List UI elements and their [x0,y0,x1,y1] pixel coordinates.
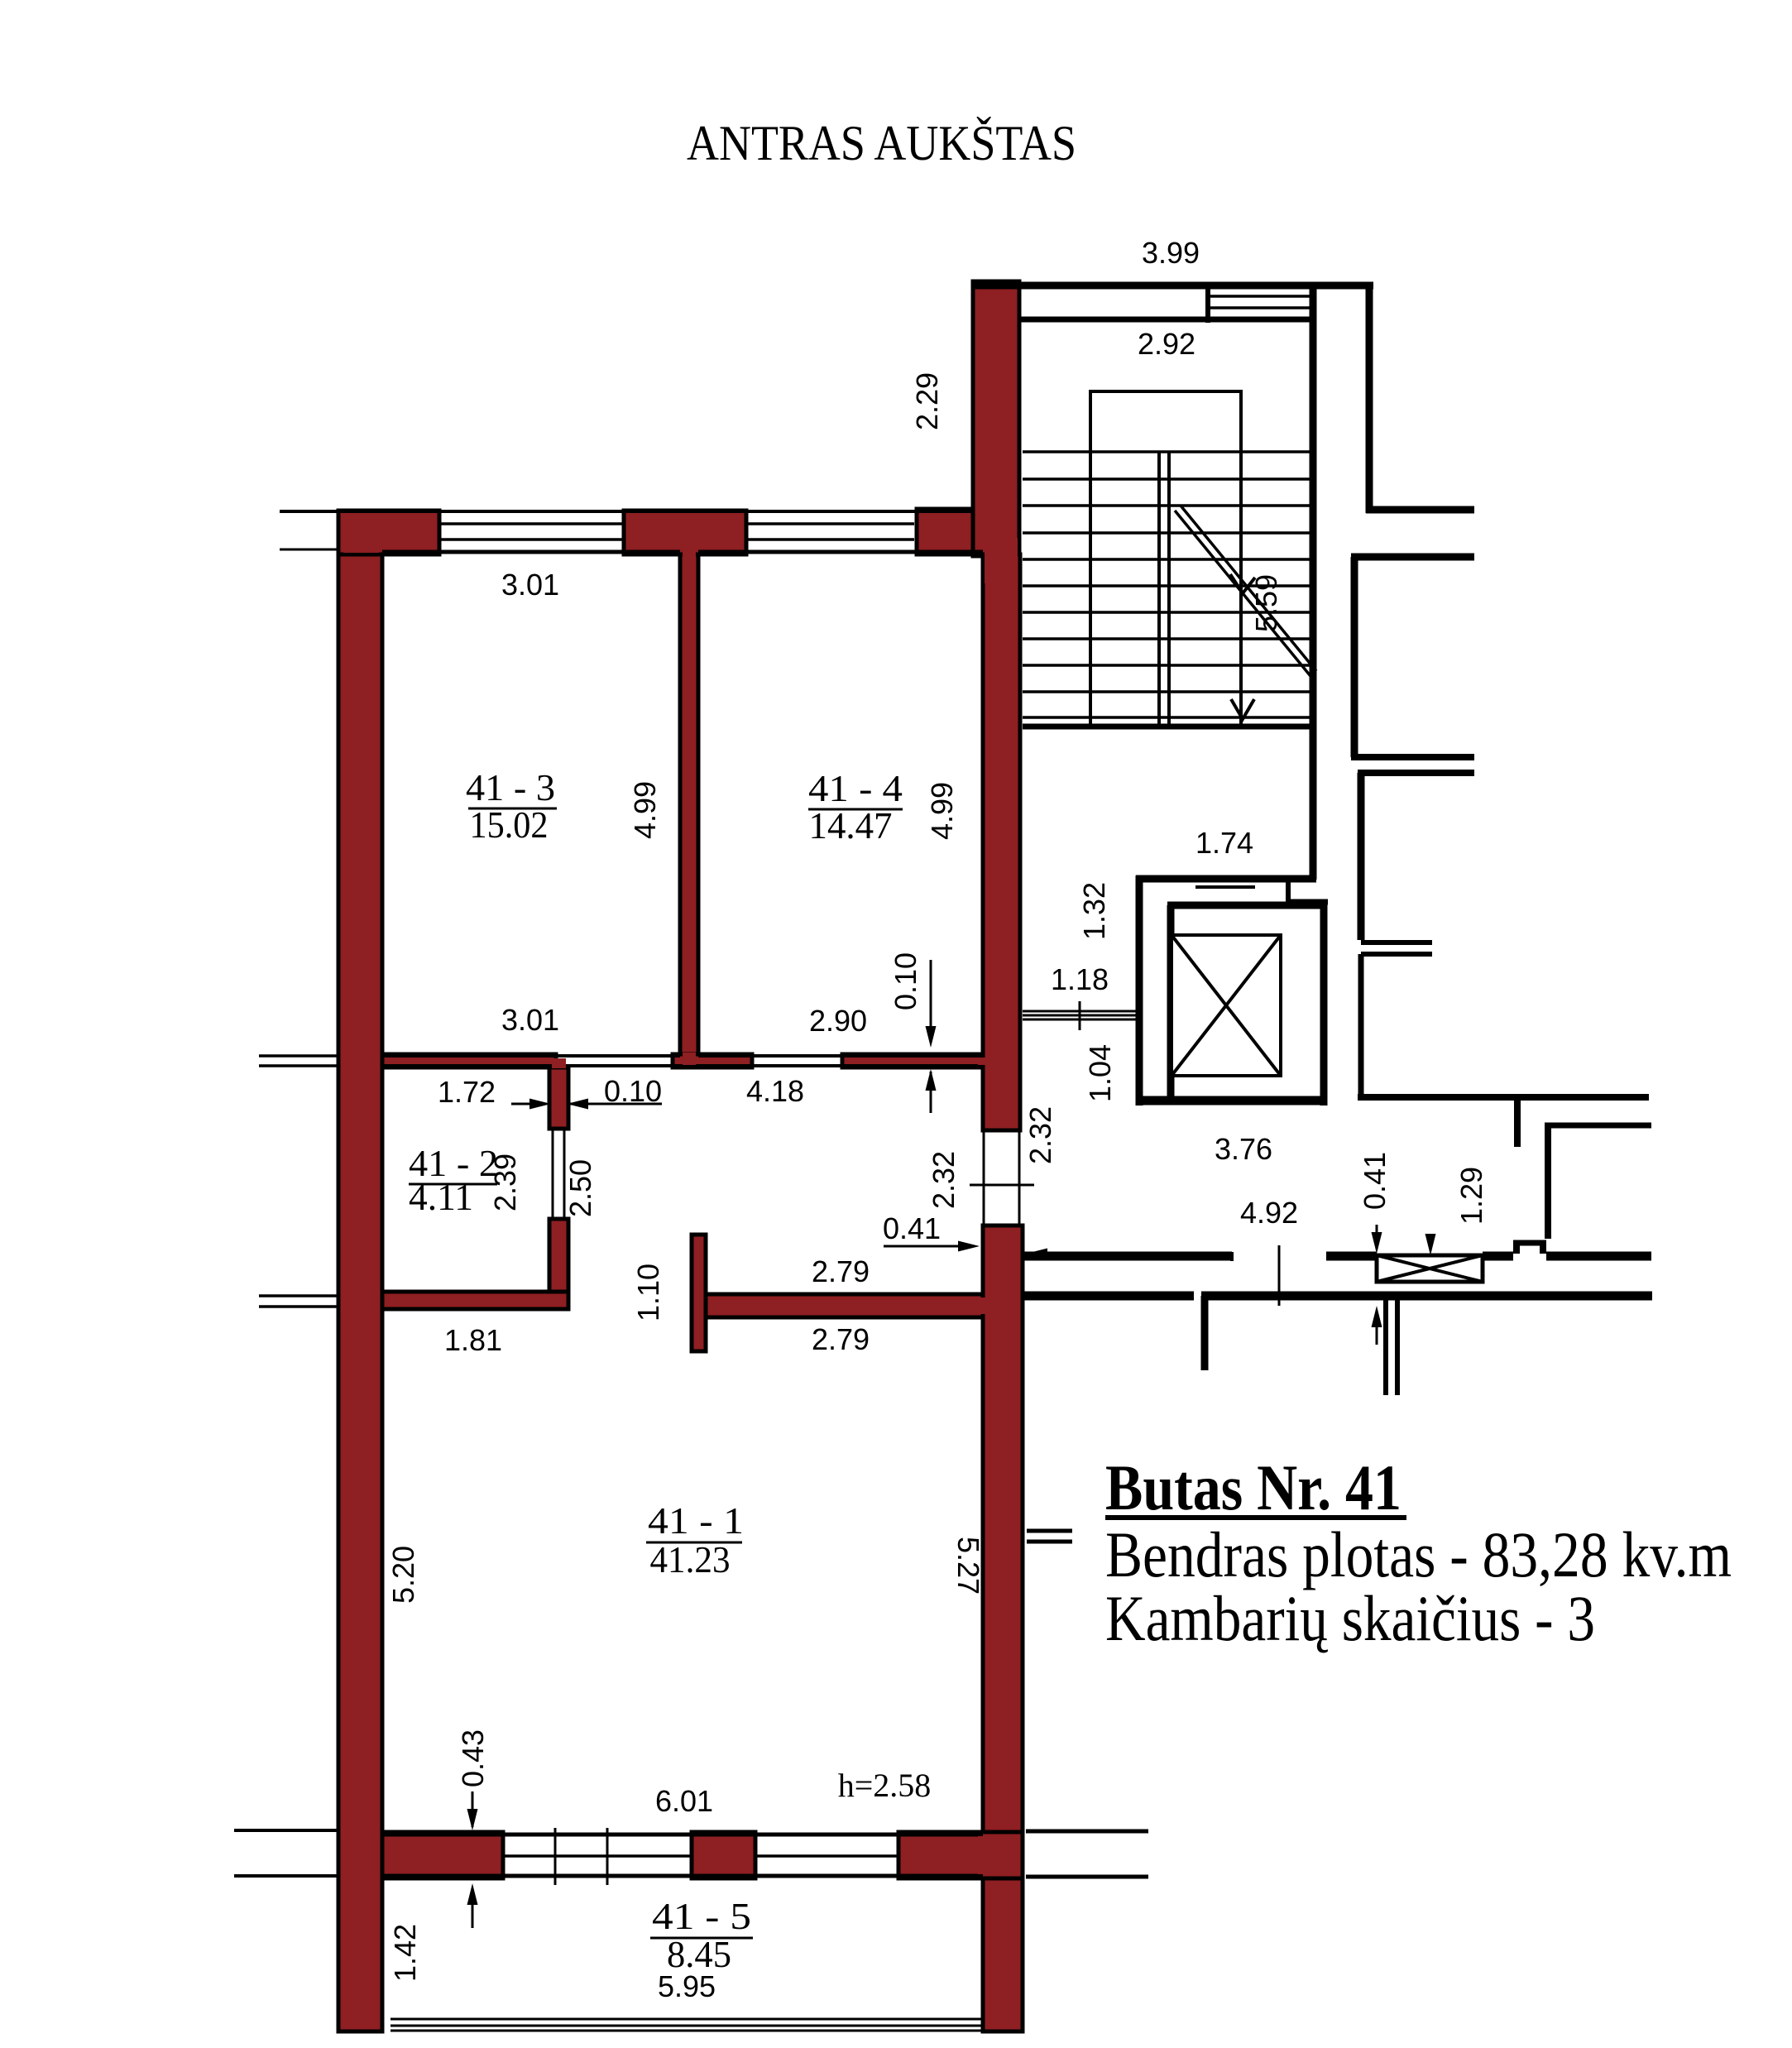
svg-text:1.72: 1.72 [438,1075,496,1109]
svg-text:14.47: 14.47 [809,804,893,847]
svg-text:3.76: 3.76 [1215,1132,1272,1166]
svg-text:1.81: 1.81 [444,1323,502,1357]
svg-text:Kambarių skaičius - 3: Kambarių skaičius - 3 [1105,1582,1595,1654]
svg-text:1.10: 1.10 [631,1264,665,1321]
svg-text:3.01: 3.01 [501,568,559,602]
svg-text:0.43: 0.43 [456,1729,490,1787]
svg-text:2.32: 2.32 [927,1151,961,1209]
svg-text:5.20: 5.20 [386,1546,420,1604]
svg-text:3.99: 3.99 [1142,236,1200,270]
svg-text:1.18: 1.18 [1051,962,1109,996]
svg-text:4.92: 4.92 [1240,1196,1298,1230]
svg-text:1.32: 1.32 [1077,882,1111,940]
svg-text:4.99: 4.99 [628,781,662,839]
svg-text:2.79: 2.79 [812,1254,870,1288]
svg-text:41 - 5: 41 - 5 [652,1895,751,1937]
svg-text:Bendras plotas - 83,28 kv.m: Bendras plotas - 83,28 kv.m [1105,1518,1732,1590]
svg-text:3.01: 3.01 [501,1003,559,1037]
svg-text:4.18: 4.18 [746,1074,804,1108]
svg-text:ANTRAS AUKŠTAS: ANTRAS AUKŠTAS [687,116,1076,170]
svg-text:6.01: 6.01 [655,1784,713,1818]
svg-text:0.41: 0.41 [1358,1152,1392,1210]
svg-text:4.11: 4.11 [409,1176,473,1218]
svg-text:41 - 4: 41 - 4 [808,767,903,809]
svg-text:15.02: 15.02 [470,803,549,846]
svg-text:2.92: 2.92 [1138,327,1195,361]
svg-text:2.29: 2.29 [910,372,944,430]
svg-text:2.32: 2.32 [1023,1106,1057,1164]
svg-text:2.79: 2.79 [812,1322,870,1356]
svg-text:0.10: 0.10 [889,952,922,1010]
svg-text:1.04: 1.04 [1083,1044,1117,1102]
svg-text:0.41: 0.41 [883,1211,941,1245]
svg-text:h=2.58: h=2.58 [838,1767,932,1804]
svg-text:4.99: 4.99 [925,782,959,840]
svg-text:8.45: 8.45 [667,1933,731,1975]
svg-text:Butas Nr. 41: Butas Nr. 41 [1105,1451,1401,1523]
svg-text:41 - 1: 41 - 1 [648,1499,744,1542]
svg-text:5.59: 5.59 [1249,574,1283,632]
svg-text:1.74: 1.74 [1195,826,1253,860]
svg-text:2.90: 2.90 [809,1004,867,1038]
svg-text:1.42: 1.42 [388,1924,422,1982]
svg-text:1.29: 1.29 [1454,1167,1488,1225]
svg-text:0.10: 0.10 [604,1074,662,1108]
svg-text:41 - 3: 41 - 3 [466,766,555,808]
svg-text:5.27: 5.27 [951,1537,985,1595]
svg-text:41.23: 41.23 [650,1538,731,1580]
svg-text:2.50: 2.50 [563,1159,597,1217]
